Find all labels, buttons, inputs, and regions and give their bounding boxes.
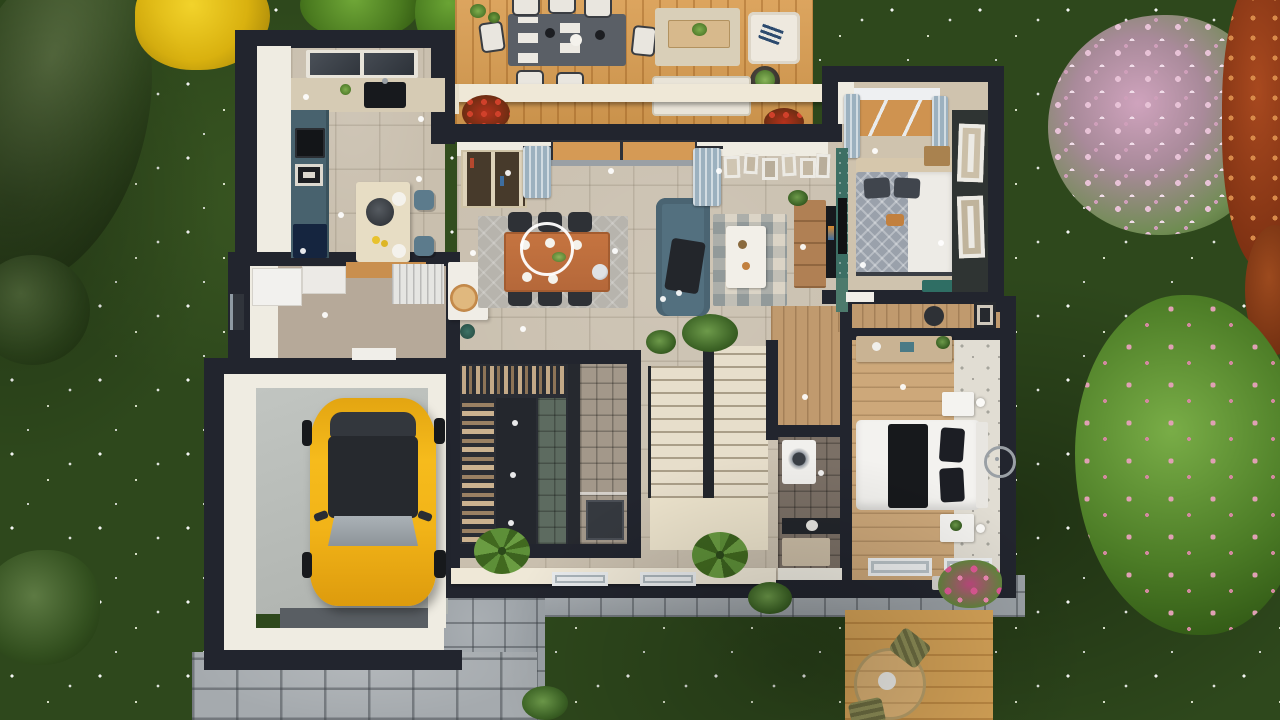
car-roof [328,436,418,518]
bathroom-cabinet [782,538,830,566]
cooktop [295,128,325,158]
serving-tray [592,264,608,280]
outdoor-chair [584,0,612,18]
appliance-box [302,266,346,294]
door [352,348,396,360]
window [230,294,244,330]
ring-chandelier [520,222,574,276]
sink-icon [806,520,818,531]
wall-art-frame [781,154,796,177]
table-runner [518,17,538,63]
window [868,558,932,576]
wall-art-frame [762,158,778,180]
table-decor [595,30,605,40]
table-lamp-icon [976,398,985,407]
hallway-wood-floor [771,306,840,431]
lemon-icon [372,236,380,244]
downlight-icon [608,168,614,174]
wall [627,350,641,558]
table-decor [738,240,747,249]
plate [392,192,406,206]
plant-icon [340,84,351,95]
dining-chair [568,212,592,232]
tv-console [794,200,826,288]
oven [295,164,323,186]
downlight-icon [520,326,526,332]
stair-flight-left [650,366,704,498]
bar-stool [414,190,434,210]
downlight-icon [938,240,944,246]
lemon-icon [381,240,388,247]
accent-pillow [886,214,904,226]
wall-art-frame [957,124,985,183]
wall-art-frame [800,158,816,178]
wall-top-band [224,374,256,628]
table-decor [878,672,896,690]
curtain [523,146,551,198]
stair-railing [648,366,651,498]
car-wheel [302,420,312,446]
table-decor [545,28,555,38]
curtain [693,148,721,206]
outdoor-chair [478,20,506,53]
pillow [939,467,965,502]
closet-divider-wall [568,364,580,544]
kitchen-sink [364,82,406,108]
car-wheel [434,418,445,444]
plate [392,244,406,258]
plate [570,34,582,46]
pillow [939,427,965,463]
shower-glass [580,492,627,495]
tv-screen [826,206,836,278]
shower-tray [586,500,624,540]
wall-art-frame [724,156,741,179]
clock-center [995,457,999,461]
folded-clothes-shelves [462,398,494,542]
skylight-glass [310,53,360,75]
downlight-icon [660,296,666,302]
freezer-appliance [252,268,302,306]
window [640,572,696,586]
downlight-icon [508,520,514,526]
wall-top-band [257,46,291,258]
desk-chair [924,306,944,326]
wall [988,66,1004,312]
downlight-icon [416,176,422,182]
wall-face [778,568,842,580]
car-windshield [328,516,418,546]
door-threshold [551,160,693,166]
car-wheel [434,550,446,578]
black-throw [888,424,928,508]
downlight-icon [676,290,682,296]
window [552,572,608,586]
fern-icon [748,582,792,614]
refrigerator [293,224,327,258]
agave-plant-icon [692,532,748,578]
plant-icon [950,520,962,531]
faucet-icon [382,78,388,84]
downlight-icon [802,394,808,400]
stair-railing [703,350,714,498]
book-icon [470,158,474,168]
outdoor-chair [548,0,576,14]
downlight-icon [510,472,516,478]
floor-plan-render [0,0,1280,720]
door-mullion [620,140,623,160]
wall-art-frame [816,154,831,178]
plate [522,272,532,282]
downlight-icon [303,94,309,100]
table-lamp-icon [976,524,985,533]
wall [206,358,460,374]
outdoor-chair [512,0,540,16]
wall [822,66,1004,82]
window-seat [858,100,936,136]
nightstand [924,146,950,166]
plant-icon [692,23,707,36]
wall [204,358,224,670]
bowl-icon [366,198,394,226]
bougainvillea-icon [938,560,1002,608]
wall-art-frame [743,154,758,175]
car-rear-window [330,412,416,438]
downlight-icon [800,244,806,250]
downlight-icon [716,168,722,174]
plant-icon [682,314,738,352]
bed-footboard [856,272,956,276]
wall-clock-icon [984,446,1016,478]
bar-stool [414,236,434,256]
downlight-icon [872,148,878,154]
downlight-icon [505,170,511,176]
plant-icon [936,336,950,349]
washer-door-icon [788,448,810,470]
window-frame [854,88,940,100]
wall-top-band [256,374,446,388]
nightstand [942,392,974,416]
drying-rack [392,264,444,304]
downlight-icon [512,420,518,426]
book-icon [500,176,504,186]
wall [204,650,462,670]
downlight-icon [860,262,866,268]
downlight-icon [300,248,306,254]
pillow [863,177,890,199]
fern-icon [522,686,568,720]
leaning-frame [974,302,996,328]
table-decor [742,262,750,270]
dresser-decor [900,342,914,352]
agave-plant-icon [474,528,530,574]
wall-art-frame [957,196,985,259]
plant-icon [646,330,676,354]
downlight-icon [418,116,424,122]
stair-flight-right [714,346,768,498]
plant-icon [788,190,808,206]
outdoor-chair [630,25,657,57]
closet-floor [538,398,566,544]
car-wheel [302,552,312,578]
wall [235,30,257,268]
hanging-clothes [462,366,566,394]
downlight-icon [338,212,344,218]
round-wood-mirror [450,284,478,312]
plant-icon [488,12,500,23]
tv-screen [838,198,847,254]
tv-screen-glow [828,226,834,240]
vase-icon [460,324,475,339]
wall [455,350,641,364]
downlight-icon [322,312,328,318]
downlight-icon [470,250,476,256]
downlight-icon [612,248,618,254]
door [846,292,874,302]
wall-top-band [224,628,444,650]
downlight-icon [818,470,824,476]
wall [840,304,852,584]
downlight-icon [900,384,906,390]
pillow [893,177,920,198]
skylight-glass [364,53,414,75]
plant-icon [470,4,486,18]
dresser-decor [872,342,881,351]
coffee-table [726,226,766,288]
